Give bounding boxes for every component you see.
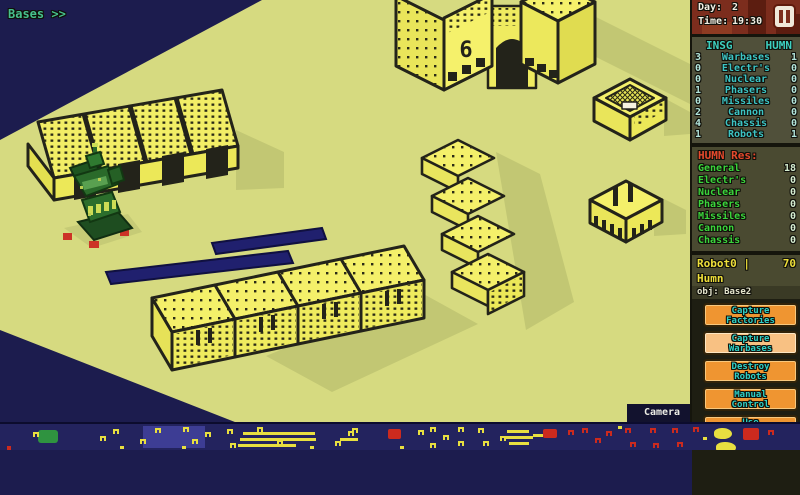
- minimap-mark: [430, 443, 436, 448]
- resource-row: Missiles0: [692, 211, 800, 223]
- pause-button[interactable]: [773, 4, 796, 29]
- col-humn: HUMN: [766, 39, 793, 52]
- minimap-mark: [120, 446, 124, 449]
- minimap-mark: [650, 428, 656, 433]
- warbase-number: 6: [459, 38, 472, 63]
- time-value: 19:30: [732, 16, 762, 27]
- minimap-mark: [458, 427, 464, 432]
- minimap-mark: [595, 438, 601, 443]
- stats-row: 0Missiles0: [692, 96, 800, 107]
- robot-hp: 70: [783, 256, 796, 286]
- resource-row: General18: [692, 163, 800, 175]
- minimap-mark: [227, 429, 233, 434]
- stats-row: 3Warbases1: [692, 52, 800, 63]
- robot-title: Robot0 | Humn: [697, 256, 783, 286]
- minimap-mark: [352, 428, 358, 433]
- minimap-mark: [505, 436, 533, 439]
- minimap-mark: [140, 439, 146, 444]
- minimap-mark: [113, 429, 119, 434]
- minimap-viewport[interactable]: [143, 426, 205, 448]
- minimap-mark: [38, 430, 58, 443]
- minimap-mark: [388, 429, 401, 439]
- minimap-mark: [430, 427, 436, 432]
- manual-control-button[interactable]: Manual Control: [703, 387, 798, 411]
- minimap-mark: [240, 438, 316, 441]
- camera-button[interactable]: Camera: [627, 404, 697, 422]
- minimap-mark: [653, 443, 659, 448]
- minimap-mark: [335, 441, 341, 446]
- game-viewport[interactable]: 6: [0, 0, 690, 424]
- capture-factories-button[interactable]: Capture Factories: [703, 303, 798, 327]
- minimap-mark: [743, 428, 759, 440]
- bases-toggle[interactable]: Bases >>: [8, 7, 66, 21]
- minimap-mark: [716, 442, 736, 450]
- minimap-mark: [543, 429, 557, 438]
- minimap-mark: [693, 427, 699, 432]
- day-value: 2: [732, 2, 738, 13]
- minimap-mark: [182, 446, 186, 449]
- minimap-mark: [568, 430, 574, 435]
- stats-row: 4Chassis0: [692, 118, 800, 129]
- minimap-mark: [238, 444, 296, 447]
- minimap-mark: [7, 446, 11, 450]
- faction-stats-panel: INSG HUMN 3Warbases1 0Electr's0 0Nuclear…: [692, 37, 800, 147]
- minimap-mark: [507, 430, 529, 433]
- day-label: Day:: [698, 1, 732, 14]
- minimap-mark: [582, 428, 588, 433]
- col-insg: INSG: [706, 39, 733, 52]
- stats-row: 0Electr's0: [692, 63, 800, 74]
- command-buttons: Capture Factories Capture Warbases Destr…: [692, 299, 800, 439]
- destroy-robots-button[interactable]: Destroy Robots: [703, 359, 798, 383]
- minimap-mark: [310, 446, 314, 449]
- resources-panel: HUMN Res: General18 Electr's0 Nuclear0 P…: [692, 147, 800, 255]
- robot-panel: Robot0 | Humn 70 obj: Base2 Capture Fact…: [692, 255, 800, 495]
- resources-title: HUMN Res:: [692, 149, 800, 163]
- minimap-mark: [768, 430, 774, 435]
- minimap-mark: [192, 439, 198, 444]
- minimap-mark: [230, 443, 236, 448]
- minimap-mark: [418, 430, 424, 435]
- robot-header: Robot0 | Humn 70: [692, 255, 800, 286]
- pause-icon: [786, 10, 790, 23]
- minimap-mark: [714, 428, 732, 439]
- minimap-mark: [677, 442, 683, 447]
- minimap-mark: [618, 426, 622, 429]
- minimap-mark: [205, 432, 211, 437]
- minimap-mark: [400, 446, 404, 449]
- resource-row: Chassis0: [692, 235, 800, 247]
- minimap-mark: [533, 434, 543, 437]
- minimap-mark: [443, 435, 449, 440]
- minimap-mark: [100, 436, 106, 441]
- minimap-mark: [458, 441, 464, 446]
- resource-row: Nuclear0: [692, 187, 800, 199]
- sidebar: Day:2 Time:19:30 INSG HUMN 3Warbases1 0E…: [690, 0, 800, 424]
- resource-row: Phasers0: [692, 199, 800, 211]
- minimap-mark: [483, 441, 489, 446]
- building-warbase-6[interactable]: 6: [396, 0, 595, 90]
- minimap-mark: [183, 427, 189, 432]
- capture-warbases-button[interactable]: Capture Warbases: [703, 331, 798, 355]
- resource-row: Cannon0: [692, 223, 800, 235]
- stats-row: 0Nuclear0: [692, 74, 800, 85]
- minimap-mark: [703, 437, 707, 440]
- minimap[interactable]: [0, 422, 800, 450]
- minimap-mark: [478, 428, 484, 433]
- minimap-mark: [155, 428, 161, 433]
- pause-icon: [779, 10, 783, 23]
- stats-row: 1Robots1: [692, 129, 800, 140]
- stats-header: INSG HUMN: [692, 39, 800, 52]
- minimap-mark: [243, 432, 315, 435]
- time-label: Time:: [698, 15, 732, 28]
- minimap-mark: [33, 432, 39, 437]
- minimap-mark: [509, 442, 529, 445]
- stats-row: 1Phasers0: [692, 85, 800, 96]
- minimap-mark: [625, 428, 631, 433]
- minimap-mark: [340, 438, 358, 441]
- minimap-mark: [672, 428, 678, 433]
- minimap-mark: [630, 442, 636, 447]
- day-time-panel: Day:2 Time:19:30: [692, 0, 800, 37]
- robot-objective: obj: Base2: [692, 286, 800, 299]
- resource-row: Electr's0: [692, 175, 800, 187]
- game-map[interactable]: 6: [0, 0, 690, 424]
- stats-row: 2Cannon0: [692, 107, 800, 118]
- minimap-mark: [606, 431, 612, 436]
